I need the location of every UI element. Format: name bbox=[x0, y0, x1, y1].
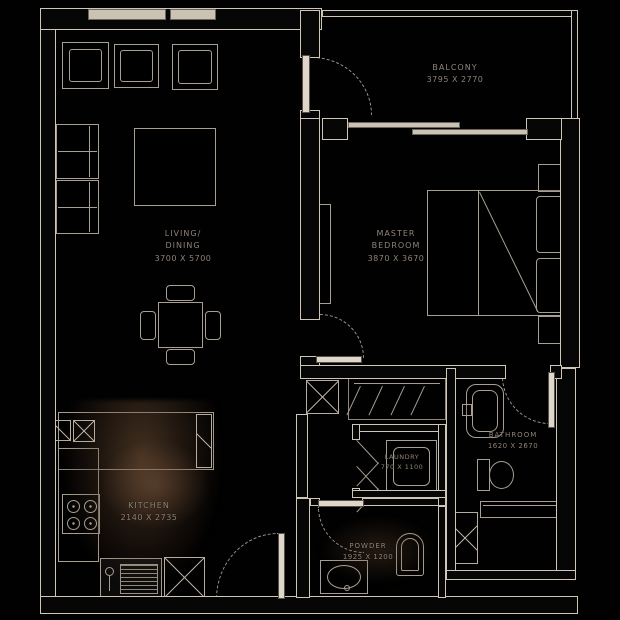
kitchen-tall-cabinet bbox=[196, 414, 212, 468]
room-name: LIVING/ bbox=[132, 228, 234, 240]
wall-bedroom-bottom-a bbox=[300, 365, 506, 379]
wall-laundry-top bbox=[352, 424, 446, 432]
bedroom-door-leaf bbox=[316, 356, 362, 363]
wall-bottom-outer bbox=[40, 596, 578, 614]
dining-chair bbox=[166, 285, 195, 301]
wall-bathroom-right bbox=[556, 368, 576, 578]
dining-table bbox=[158, 302, 203, 348]
room-name: DINING bbox=[132, 240, 234, 252]
balcony-door-leaf bbox=[302, 55, 310, 113]
room-dims: 3700 x 5700 bbox=[132, 253, 234, 265]
armchair-cushion bbox=[120, 50, 153, 82]
floor-plan: BALCONY 3795 x 2770 LIVING/ DINING 3700 … bbox=[0, 0, 620, 620]
kitchen-door-leaf bbox=[278, 533, 285, 599]
room-label-powder: POWDER 1925 x 1200 bbox=[316, 541, 420, 563]
room-dims: 3795 x 2770 bbox=[390, 74, 520, 86]
room-label-laundry: LAUNDRY 770 x 1100 bbox=[358, 452, 446, 472]
stove-burner bbox=[67, 500, 80, 513]
room-dims: 3870 x 3670 bbox=[346, 253, 446, 265]
room-label-kitchen: KITCHEN 2140 x 2735 bbox=[95, 500, 203, 525]
wall-laundry-bottom bbox=[352, 490, 446, 498]
room-label-living-dining: LIVING/ DINING 3700 x 5700 bbox=[132, 228, 234, 265]
room-dims: 770 x 1100 bbox=[358, 462, 446, 472]
room-name: BATHROOM bbox=[458, 430, 568, 441]
armchair-cushion bbox=[178, 50, 212, 84]
wardrobe-rail bbox=[354, 383, 440, 384]
wall-balcony-top bbox=[322, 10, 578, 17]
wall-corridor-left bbox=[296, 414, 308, 498]
kitchen-box-x-icon bbox=[73, 420, 95, 442]
room-name: MASTER bbox=[346, 228, 446, 240]
wall-bathroom-bottom bbox=[446, 570, 576, 580]
bed-sheet-line bbox=[478, 191, 479, 315]
dining-chair bbox=[166, 349, 195, 365]
wall-powder-left bbox=[296, 498, 310, 598]
powder-door-leaf bbox=[318, 500, 364, 507]
balcony-door-arc bbox=[312, 57, 372, 115]
powder-tap-icon bbox=[344, 585, 350, 591]
kitchen-shaft-x-icon bbox=[164, 557, 205, 598]
bath-tap-icon bbox=[462, 404, 472, 416]
wall-bathroom-left bbox=[446, 368, 456, 578]
wall-living-bedroom-divider bbox=[300, 118, 320, 320]
kitchen-door-arc bbox=[216, 533, 278, 599]
bathtub-inner bbox=[472, 390, 498, 432]
armchair-cushion bbox=[69, 49, 102, 82]
bedroom-door-arc bbox=[320, 314, 364, 358]
room-label-balcony: BALCONY 3795 x 2770 bbox=[390, 62, 520, 87]
sliding-window-panel-1 bbox=[348, 122, 460, 128]
window-top-1 bbox=[88, 9, 166, 20]
wall-balcony-right bbox=[571, 10, 578, 122]
wall-powder-right bbox=[438, 506, 446, 598]
room-dims: 1620 x 2670 bbox=[458, 441, 568, 452]
wall-left-outer bbox=[40, 8, 56, 612]
room-dims: 1925 x 1200 bbox=[316, 552, 420, 563]
faucet-icon bbox=[105, 567, 114, 576]
sink-drainer-icon bbox=[120, 564, 158, 594]
area-rug bbox=[134, 128, 216, 206]
faucet-stem bbox=[109, 576, 110, 591]
stove-burner bbox=[67, 517, 80, 530]
dining-chair bbox=[140, 311, 156, 340]
room-label-master-bedroom: MASTER BEDROOM 3870 x 3670 bbox=[346, 228, 446, 265]
vanity-inner-line bbox=[483, 505, 563, 506]
bookshelf-divider bbox=[58, 207, 97, 208]
room-name: BALCONY bbox=[390, 62, 520, 74]
window-top-2 bbox=[170, 9, 216, 20]
room-name: KITCHEN bbox=[95, 500, 203, 512]
bathroom-door-arc bbox=[502, 376, 550, 424]
wall-laundry-left-a bbox=[352, 424, 360, 440]
room-dims: 2140 x 2735 bbox=[95, 512, 203, 524]
bathroom-door-leaf bbox=[548, 372, 555, 428]
vanity-counter bbox=[480, 501, 566, 518]
toilet-bowl-icon bbox=[489, 461, 514, 489]
room-label-bathroom: BATHROOM 1620 x 2670 bbox=[458, 430, 568, 452]
sliding-window-panel-2 bbox=[412, 129, 528, 135]
wall-balcony-bedroom-left bbox=[322, 118, 348, 140]
room-name: LAUNDRY bbox=[358, 452, 446, 462]
dining-chair bbox=[205, 311, 221, 340]
wall-balcony-living-divider bbox=[300, 10, 320, 58]
room-name: POWDER bbox=[316, 541, 420, 552]
room-name: BEDROOM bbox=[346, 240, 446, 252]
wall-powder-top-b bbox=[362, 498, 446, 506]
wall-balcony-bedroom-right bbox=[526, 118, 562, 140]
wall-bedroom-right bbox=[560, 118, 580, 368]
bookshelf-divider bbox=[58, 151, 97, 152]
shaft-x-icon bbox=[306, 380, 339, 414]
